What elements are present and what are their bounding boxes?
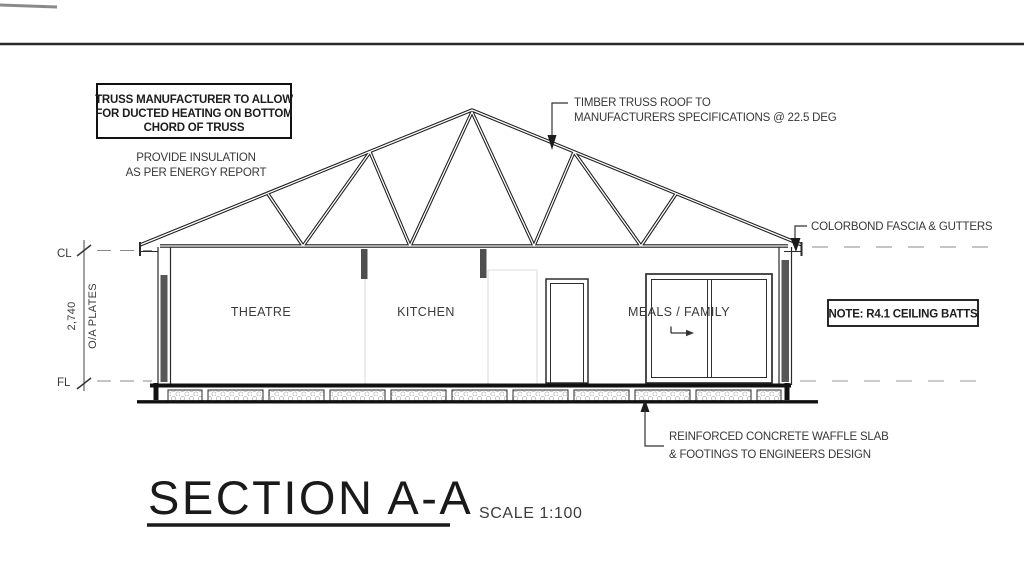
ceiling-batts-note: NOTE: R4.1 CEILING BATTS <box>828 300 978 326</box>
svg-text:REINFORCED CONCRETE WAFFLE SLA: REINFORCED CONCRETE WAFFLE SLAB <box>669 431 889 443</box>
sliding-door <box>646 274 772 383</box>
internal-wall-nib <box>361 249 368 279</box>
room-label-meals-family: MEALS / FAMILY <box>628 305 730 319</box>
ceiling-level-label: CL <box>57 248 72 260</box>
drawing-title: SECTION A-A <box>148 471 473 524</box>
room-label-theatre: THEATRE <box>231 305 291 319</box>
floor-level-label: FL <box>57 377 71 389</box>
section-drawing-sheet: CL FL 2,740 O/A PLATES THEATRE KITCHEN M… <box>0 0 1024 575</box>
svg-text:AS PER ENERGY REPORT: AS PER ENERGY REPORT <box>126 167 267 179</box>
room-label-kitchen: KITCHEN <box>397 305 455 319</box>
dimension-value: 2,740 <box>66 301 78 330</box>
truss-manufacturer-note: TRUSS MANUFACTURER TO ALLOW FOR DUCTED H… <box>95 84 293 138</box>
external-wall-right <box>779 247 792 385</box>
svg-text:& FOOTINGS TO ENGINEERS DESIGN: & FOOTINGS TO ENGINEERS DESIGN <box>669 449 871 461</box>
drawing-scale: SCALE 1:100 <box>479 505 583 522</box>
section-a-a-drawing: CL FL 2,740 O/A PLATES THEATRE KITCHEN M… <box>0 0 1024 575</box>
svg-text:FOR DUCTED HEATING ON BOTTOM: FOR DUCTED HEATING ON BOTTOM <box>95 108 292 120</box>
waffle-slab <box>137 383 818 402</box>
wall-insulation-right <box>782 260 790 382</box>
svg-text:TIMBER TRUSS ROOF TO: TIMBER TRUSS ROOF TO <box>574 97 711 109</box>
svg-text:MANUFACTURERS SPECIFICATIONS @: MANUFACTURERS SPECIFICATIONS @ 22.5 DEG <box>574 112 837 124</box>
sheet-edge-mark <box>0 5 57 7</box>
waffle-pods <box>168 390 781 401</box>
wall-insulation-left <box>161 275 168 382</box>
dimension-label: O/A PLATES <box>87 283 99 349</box>
internal-door <box>546 279 588 383</box>
svg-text:NOTE: R4.1 CEILING BATTS: NOTE: R4.1 CEILING BATTS <box>829 309 978 321</box>
timber-truss-note: TIMBER TRUSS ROOF TO MANUFACTURERS SPECI… <box>548 97 837 150</box>
drawing-title-block: SECTION A-A SCALE 1:100 <box>147 471 583 525</box>
slide-direction-arrow <box>671 327 694 337</box>
svg-text:COLORBOND FASCIA & GUTTERS: COLORBOND FASCIA & GUTTERS <box>811 221 993 233</box>
external-wall-left <box>158 247 171 385</box>
svg-text:PROVIDE INSULATION: PROVIDE INSULATION <box>136 152 256 164</box>
level-dimension-left: CL FL 2,740 O/A PLATES <box>57 240 152 391</box>
waffle-slab-note: REINFORCED CONCRETE WAFFLE SLAB & FOOTIN… <box>641 399 890 461</box>
internal-wall-nib <box>480 249 487 278</box>
insulation-note: PROVIDE INSULATION AS PER ENERGY REPORT <box>126 152 267 179</box>
svg-text:TRUSS MANUFACTURER TO ALLOW: TRUSS MANUFACTURER TO ALLOW <box>95 94 293 106</box>
svg-text:CHORD OF TRUSS: CHORD OF TRUSS <box>144 122 245 134</box>
interior-wall-lines <box>365 270 537 384</box>
